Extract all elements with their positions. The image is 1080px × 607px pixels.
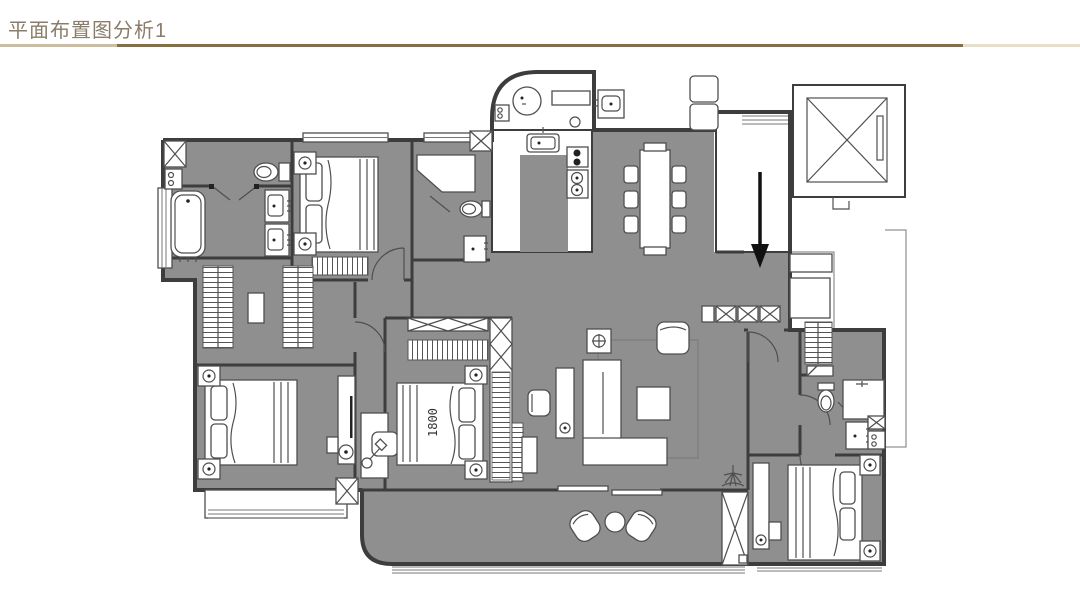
- tv-cabinet-bedroom3: [512, 423, 523, 481]
- nightstand-lamp: [465, 461, 487, 479]
- washer-box: [868, 416, 885, 449]
- structural-column-band: [490, 318, 512, 482]
- column: [470, 131, 492, 151]
- nightstand-lamp: [860, 455, 880, 475]
- armchair: [657, 322, 689, 354]
- wall-oven: [567, 147, 588, 167]
- bathtub: [171, 191, 205, 262]
- entry-lobby: [716, 112, 790, 252]
- washing-machine: [513, 87, 541, 115]
- vanity-suite: [846, 422, 870, 449]
- nightstand-lamp: [860, 541, 880, 561]
- dining-table: [640, 143, 670, 255]
- side-table: [587, 329, 611, 353]
- cooktop: [567, 170, 588, 198]
- bed-width-label: 1800: [426, 408, 440, 437]
- nightstand-lamp: [294, 152, 316, 174]
- entry-bench: [690, 76, 718, 130]
- tv-cabinet-living: [556, 368, 574, 438]
- nightstand-lamp: [198, 366, 220, 386]
- armchair-small: [528, 390, 550, 416]
- bed-three: 1800: [397, 383, 483, 465]
- balcony-column: [722, 492, 748, 565]
- exterior-corridor: [885, 230, 906, 447]
- closet-island: [248, 293, 264, 323]
- toilet-guest: [460, 201, 490, 217]
- elevator: [793, 85, 905, 209]
- nightstand-lamp: [294, 233, 316, 255]
- toilet-master: [254, 163, 290, 181]
- column: [336, 478, 358, 504]
- entry-basin: [594, 90, 624, 118]
- bath-cabinet: [165, 169, 182, 189]
- entry-wardrobe-rail: [805, 322, 833, 376]
- closet-rail-left: [203, 266, 233, 348]
- slide-page: { "header": { "title": "平面布置图分析1" }, "pl…: [0, 0, 1080, 607]
- shower-suite: [843, 380, 884, 419]
- entry-cabinets: [790, 254, 832, 318]
- side-console: [522, 437, 537, 473]
- floor-plan: 1800: [0, 0, 1080, 607]
- toilet-suite: [818, 383, 834, 412]
- nightstand-lamp: [198, 459, 220, 479]
- coffee-table: [637, 387, 670, 420]
- bed-bench-rail: [312, 257, 368, 275]
- round-table: [605, 512, 625, 532]
- bed-four: [788, 465, 862, 560]
- shoe-cabinets: [702, 306, 780, 322]
- closet-rail-right: [283, 266, 313, 348]
- bed-two: [205, 380, 297, 465]
- nightstand-lamp: [465, 366, 487, 384]
- shower-stall: [164, 141, 186, 167]
- vanity-sink: [464, 236, 488, 262]
